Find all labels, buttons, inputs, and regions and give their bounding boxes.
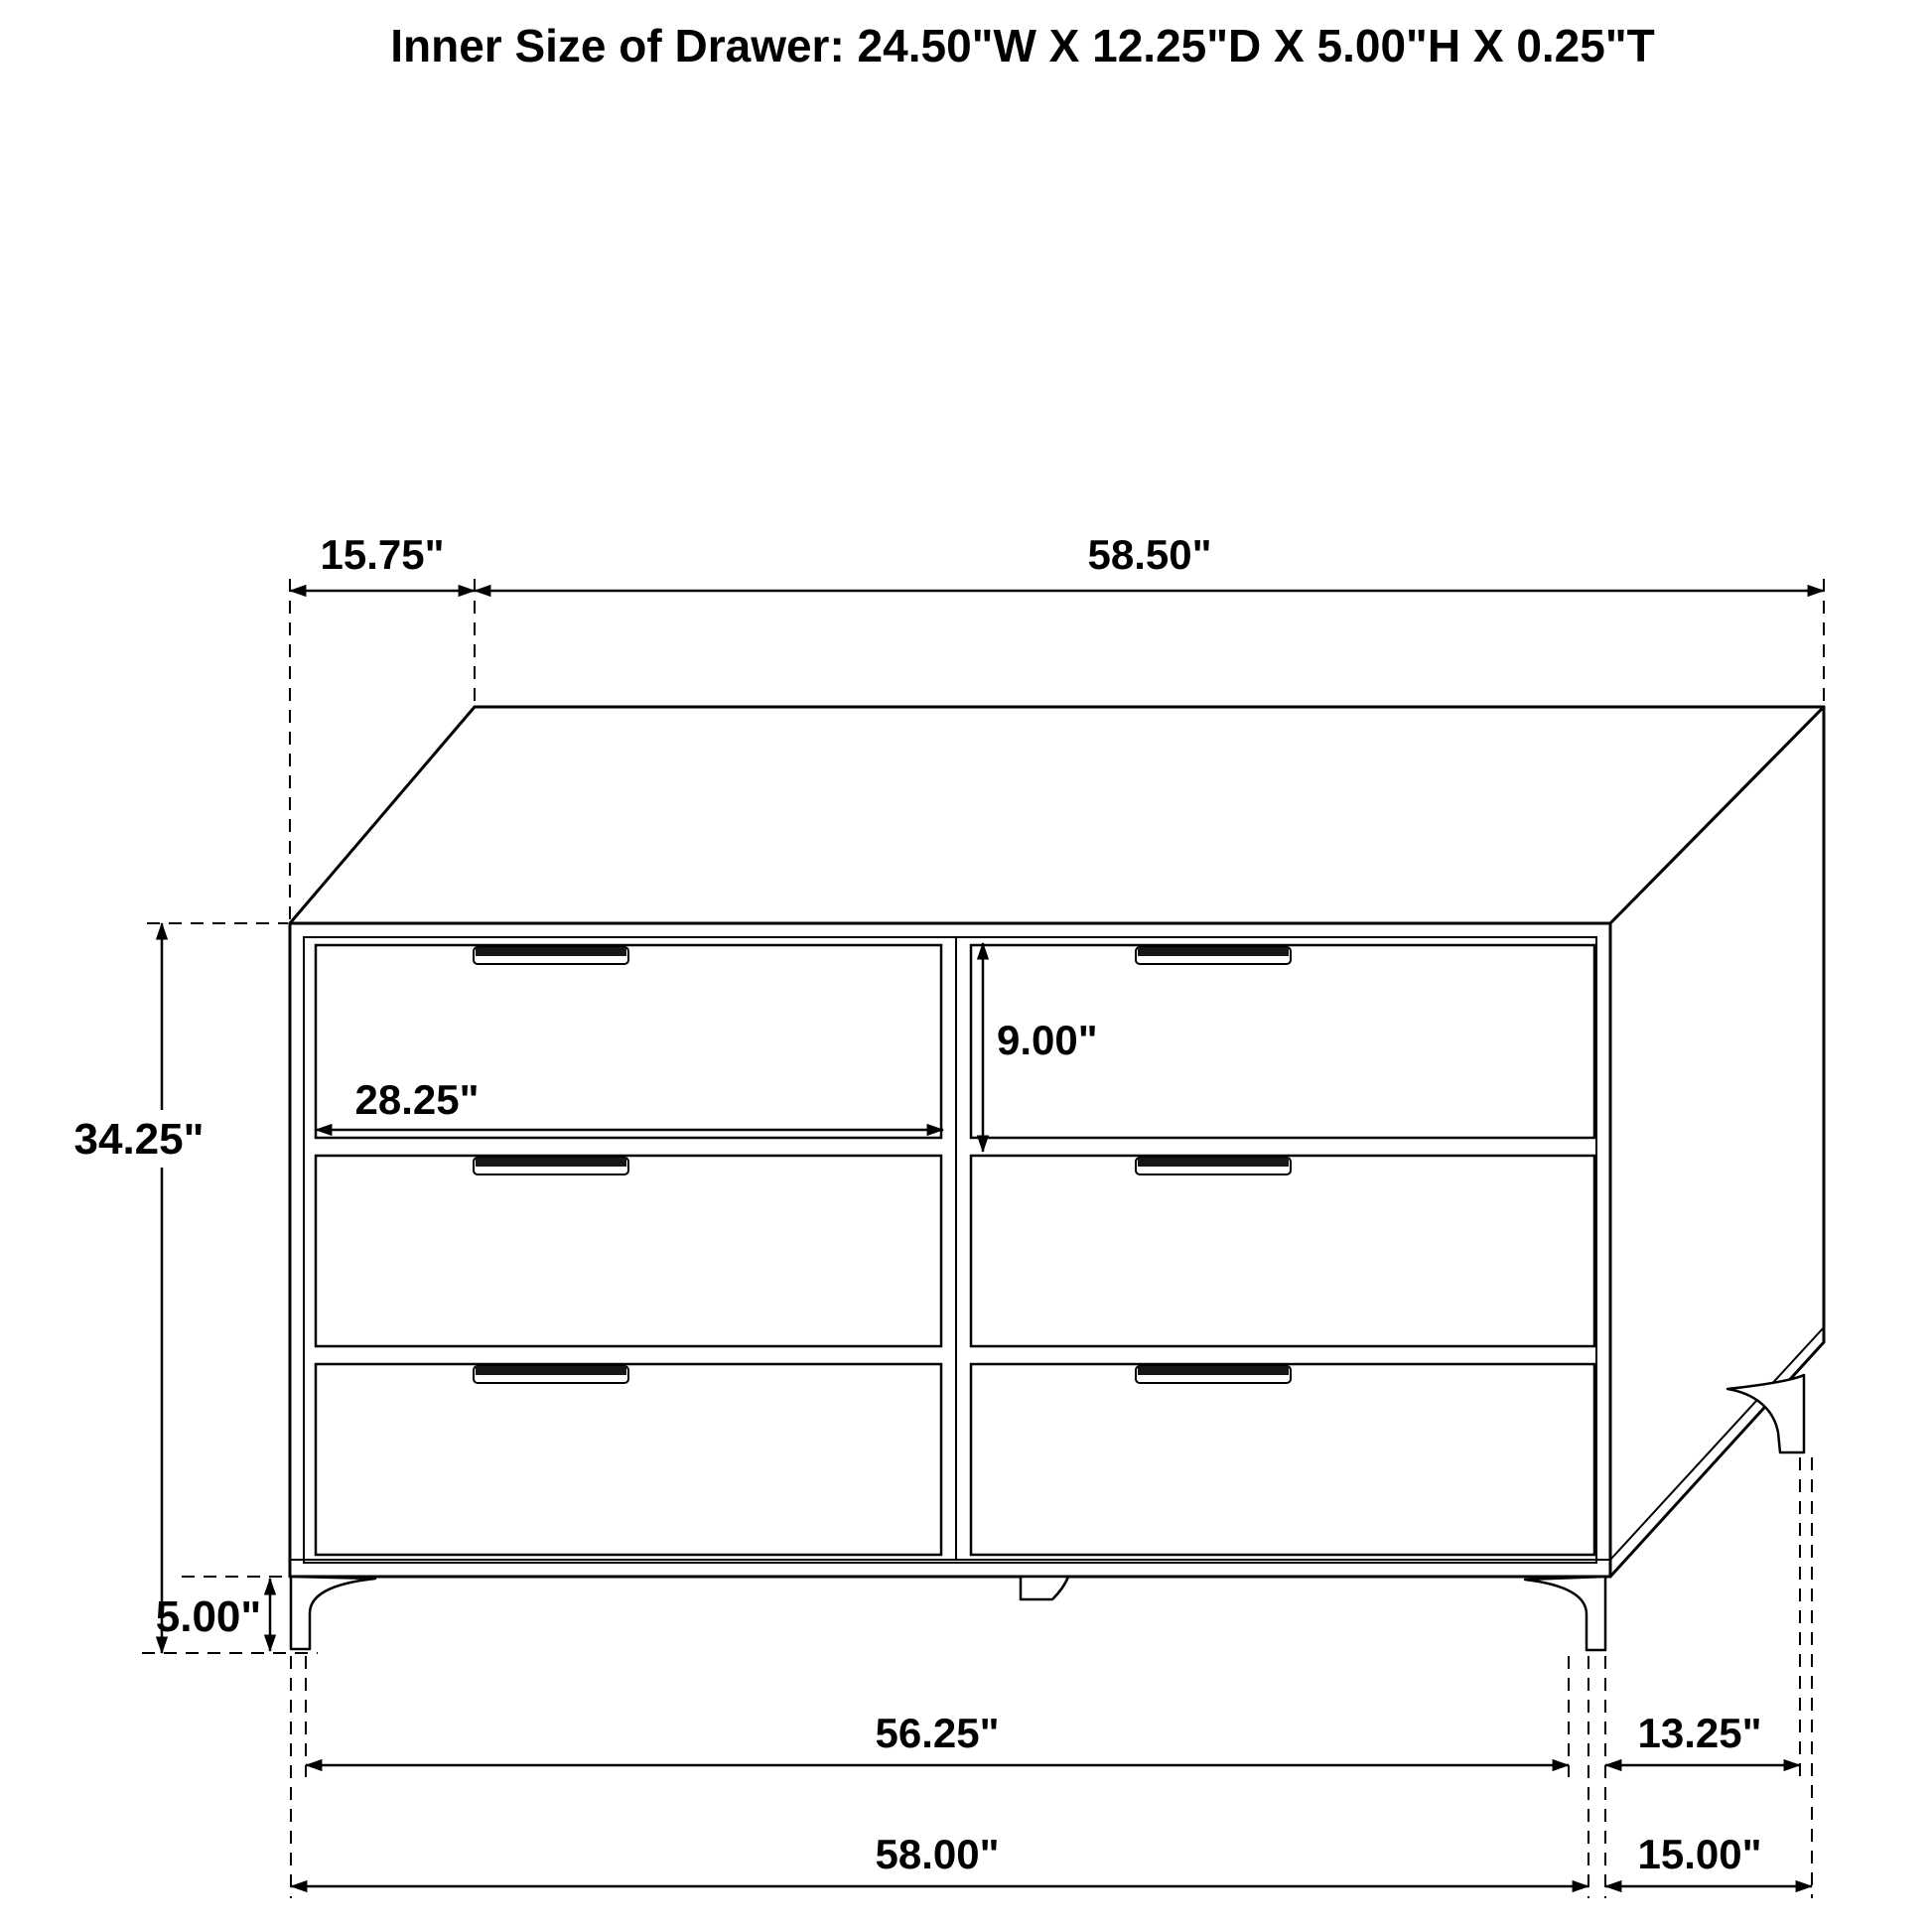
- handle-icon: [1136, 1366, 1291, 1383]
- dresser-dimension-drawing: Inner Size of Drawer: 24.50"W X 12.25"D …: [0, 0, 1932, 1932]
- page-title: Inner Size of Drawer: 24.50"W X 12.25"D …: [390, 20, 1655, 71]
- dim-label-drawer-width: 28.25": [354, 1076, 479, 1123]
- drawer-middle-right: [971, 1156, 1594, 1346]
- handle-icon: [474, 1366, 628, 1383]
- handle-icon: [474, 947, 628, 964]
- center-leg: [1021, 1577, 1068, 1599]
- handle-icon: [474, 1158, 628, 1174]
- dim-label-overall-height: 34.25": [74, 1115, 205, 1164]
- drawer-bottom-left: [316, 1364, 941, 1555]
- dim-label-leg-height: 5.00": [156, 1592, 262, 1641]
- front-right-leg: [1525, 1577, 1605, 1650]
- dim-label-drawer-front-height: 9.00": [997, 1017, 1098, 1063]
- dim-label-overall-depth: 15.00": [1637, 1831, 1761, 1877]
- handle-icon: [1136, 947, 1291, 964]
- handle-icon: [1136, 1158, 1291, 1174]
- dim-label-leg-depth-span: 13.25": [1637, 1710, 1761, 1756]
- dim-label-overall-width: 58.00": [875, 1831, 999, 1877]
- dresser-top-surface: [290, 707, 1824, 923]
- drawer-middle-left: [316, 1156, 941, 1346]
- drawer-bottom-right: [971, 1364, 1594, 1555]
- dimension-diagram: Inner Size of Drawer: 24.50"W X 12.25"D …: [0, 0, 1932, 1932]
- dim-label-top-width: 58.50": [1087, 531, 1211, 578]
- front-left-leg: [291, 1577, 375, 1649]
- dim-label-front-leg-span: 56.25": [875, 1710, 999, 1756]
- dim-label-top-depth: 15.75": [320, 531, 444, 578]
